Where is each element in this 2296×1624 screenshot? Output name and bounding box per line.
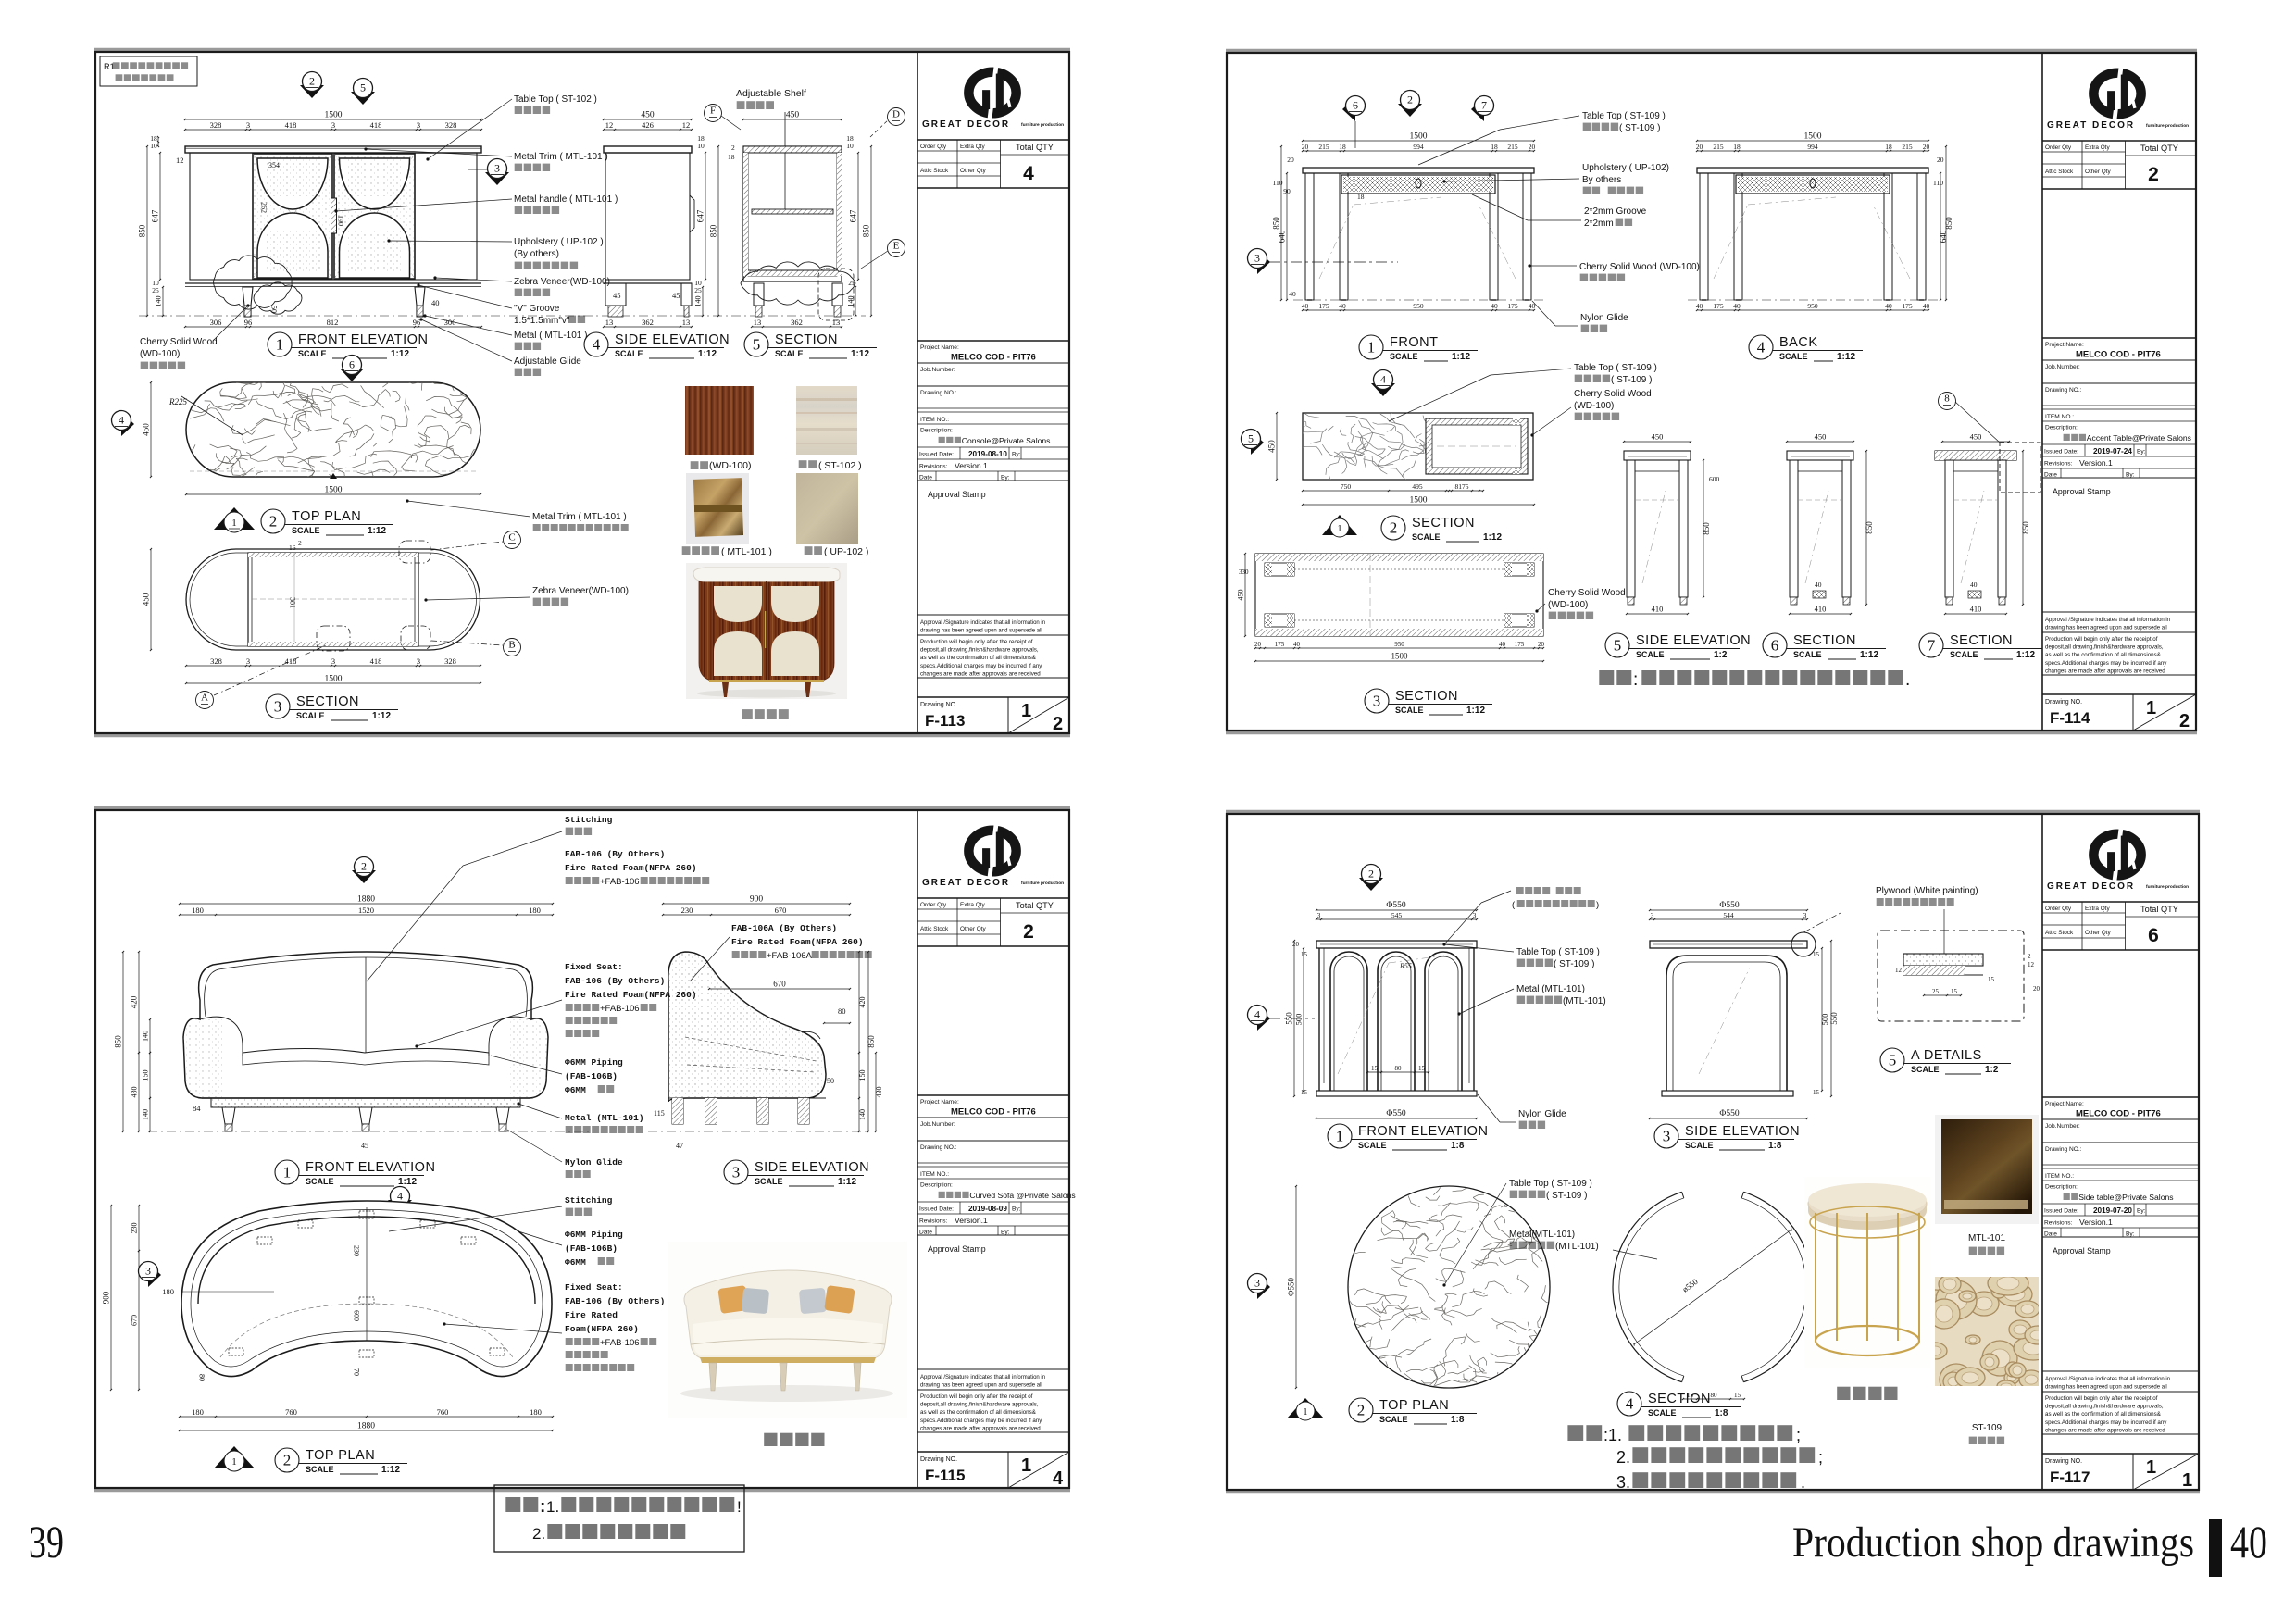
svg-text:Version.1: Version.1	[955, 461, 988, 470]
svg-text:18: 18	[1357, 193, 1365, 201]
svg-text::: :	[540, 1497, 545, 1517]
svg-text:20: 20	[1529, 143, 1536, 151]
svg-text:Description:: Description:	[920, 428, 953, 434]
svg-text:SCALE: SCALE	[1950, 650, 1978, 659]
svg-text:426: 426	[642, 120, 654, 130]
svg-text:( MTL-101 ): ( MTL-101 )	[721, 546, 772, 557]
svg-text:80: 80	[198, 1374, 206, 1381]
svg-text:418: 418	[370, 120, 382, 130]
svg-text:SIDE ELEVATION: SIDE ELEVATION	[1685, 1124, 1800, 1139]
svg-text:12: 12	[605, 120, 614, 130]
svg-text:2: 2	[1357, 1402, 1366, 1419]
svg-text:R55: R55	[1399, 962, 1412, 970]
svg-text:13: 13	[832, 318, 841, 327]
svg-text:1520: 1520	[358, 906, 374, 915]
svg-text:Extra Qty: Extra Qty	[2085, 144, 2110, 151]
svg-text:1: 1	[1021, 701, 1031, 721]
svg-text:Job.Number:: Job.Number:	[920, 367, 955, 373]
svg-text:SCALE: SCALE	[755, 1177, 783, 1186]
svg-text:FRONT ELEVATION: FRONT ELEVATION	[1358, 1124, 1488, 1139]
svg-text:40: 40	[1499, 641, 1506, 648]
svg-text:furniture production: furniture production	[1021, 122, 1064, 128]
svg-text:750: 750	[1341, 482, 1352, 491]
svg-text:A: A	[201, 693, 208, 704]
svg-text:410: 410	[1652, 605, 1664, 614]
svg-text:Metal ( MTL-101 ): Metal ( MTL-101 )	[514, 331, 587, 341]
svg-text:Drawing NO.:: Drawing NO.:	[2045, 1146, 2082, 1153]
svg-text:3: 3	[1254, 252, 1260, 265]
svg-text:20: 20	[1302, 143, 1309, 151]
svg-text:as well as the confirmation of: as well as the confirmation of all dimen…	[920, 1409, 1037, 1416]
svg-text:FAB-106 (By Others): FAB-106 (By Others)	[565, 849, 665, 859]
svg-text:Φ550: Φ550	[1287, 1277, 1296, 1296]
svg-text:15: 15	[1301, 951, 1308, 958]
svg-text:By:: By:	[1001, 1230, 1010, 1236]
svg-text:1:12: 1:12	[391, 349, 409, 359]
svg-text:Attic Stock: Attic Stock	[920, 168, 949, 174]
svg-text:( ST-109 ): ( ST-109 )	[1619, 123, 1660, 133]
svg-text:1: 1	[1021, 1455, 1031, 1476]
svg-text:5: 5	[1889, 1052, 1897, 1069]
svg-text:230: 230	[131, 1223, 139, 1234]
svg-text:450: 450	[1267, 440, 1277, 453]
svg-text:330: 330	[1239, 568, 1249, 576]
svg-text:4: 4	[593, 336, 601, 354]
svg-text:( ST-109 ): ( ST-109 )	[1611, 375, 1652, 385]
svg-text:850: 850	[114, 1035, 123, 1048]
svg-text:4: 4	[1380, 373, 1386, 386]
svg-text:Approval /Signature indicates: Approval /Signature indicates that all i…	[920, 1375, 1045, 1380]
svg-text:Curved Sofa @Private Salons: Curved Sofa @Private Salons	[969, 1191, 1075, 1200]
svg-text:3: 3	[331, 120, 335, 130]
svg-text:40: 40	[1293, 641, 1301, 648]
svg-text:850: 850	[709, 224, 718, 237]
svg-text:2*2mm: 2*2mm	[1584, 219, 1614, 229]
svg-text:Foam(NFPA 260): Foam(NFPA 260)	[565, 1324, 639, 1334]
svg-text:950: 950	[1394, 641, 1404, 648]
svg-text:By:: By:	[1001, 475, 1010, 481]
svg-text:Other Qty: Other Qty	[2085, 930, 2112, 936]
svg-text:+FAB-106: +FAB-106	[600, 1338, 640, 1348]
svg-text:760: 760	[285, 1407, 297, 1417]
svg-text:Console@Private Salons: Console@Private Salons	[962, 436, 1051, 445]
svg-text:Project Name:: Project Name:	[2045, 1101, 2084, 1107]
svg-text:SECTION: SECTION	[775, 332, 838, 347]
svg-text:2: 2	[1390, 519, 1398, 537]
svg-text:215: 215	[1713, 143, 1724, 151]
svg-text:994: 994	[1807, 143, 1818, 151]
svg-text:13: 13	[754, 318, 762, 327]
svg-text:Nylon Glide: Nylon Glide	[1518, 1109, 1566, 1119]
svg-text:950: 950	[1413, 302, 1424, 310]
svg-text:1:12: 1:12	[1483, 532, 1502, 543]
svg-text:Issued Date:: Issued Date:	[2044, 1208, 2078, 1215]
svg-text:ITEM NO.:: ITEM NO.:	[2045, 414, 2074, 420]
svg-text:Metal(MTL-101): Metal(MTL-101)	[1509, 1230, 1575, 1240]
svg-text:SCALE: SCALE	[306, 1177, 334, 1186]
svg-text:SCALE: SCALE	[775, 349, 804, 358]
svg-text:6: 6	[349, 358, 355, 371]
svg-text:175: 175	[1713, 302, 1724, 310]
svg-text:39: 39	[29, 1516, 64, 1568]
svg-text:( ST-109 ): ( ST-109 )	[1554, 959, 1594, 969]
svg-text:E: E	[893, 241, 900, 252]
svg-text:550: 550	[1829, 1012, 1839, 1025]
svg-text:2: 2	[731, 144, 735, 152]
svg-text:,: ,	[1602, 187, 1604, 197]
svg-text:90: 90	[1283, 187, 1291, 195]
svg-text:5: 5	[753, 336, 761, 354]
svg-text:450: 450	[1237, 590, 1245, 601]
svg-text:3: 3	[274, 698, 282, 716]
svg-text:7: 7	[1928, 637, 1936, 655]
svg-text:Drawing NO.: Drawing NO.	[920, 1456, 957, 1463]
svg-text:1500: 1500	[325, 111, 343, 120]
svg-text:By:: By:	[2126, 472, 2135, 479]
svg-text:2: 2	[1368, 868, 1374, 881]
svg-text:40: 40	[1923, 302, 1930, 310]
svg-text:Upholstery ( UP-102 ): Upholstery ( UP-102 )	[514, 237, 604, 247]
svg-text:Approval Stamp: Approval Stamp	[928, 490, 986, 499]
svg-text:drawing has been agreed upon a: drawing has been agreed upon and superse…	[920, 629, 1042, 634]
svg-text:418: 418	[370, 656, 382, 666]
svg-text:175: 175	[1275, 641, 1285, 648]
svg-text:Upholstery ( UP-102): Upholstery ( UP-102)	[1582, 163, 1669, 173]
svg-text:furniture production: furniture production	[2146, 884, 2189, 890]
svg-text:Φ6MM: Φ6MM	[565, 1085, 586, 1095]
svg-text:(By others): (By others)	[514, 249, 559, 259]
svg-text:50: 50	[827, 1077, 834, 1085]
svg-text:15: 15	[1988, 976, 1995, 983]
svg-text:40: 40	[1491, 302, 1498, 310]
svg-text:18: 18	[1491, 143, 1498, 151]
svg-text:1.5*1.5mm"v": 1.5*1.5mm"v"	[514, 316, 570, 326]
svg-text:SCALE: SCALE	[1395, 706, 1424, 715]
svg-text:70: 70	[353, 1368, 361, 1376]
svg-text:SCALE: SCALE	[1911, 1065, 1940, 1074]
svg-text:1: 1	[231, 1456, 237, 1468]
svg-text:450: 450	[142, 423, 151, 436]
svg-text:as well as the confirmation of: as well as the confirmation of all dimen…	[2045, 652, 2162, 658]
svg-text:Table Top ( ST-102 ): Table Top ( ST-102 )	[514, 94, 597, 105]
svg-text:deposit,all drawing,finish&har: deposit,all drawing,finish&hardware appr…	[2045, 1404, 2164, 1410]
svg-text:Table Top ( ST-109 ): Table Top ( ST-109 )	[1516, 947, 1600, 957]
svg-text:Approval Stamp: Approval Stamp	[2053, 1246, 2111, 1255]
svg-text:4: 4	[1626, 1395, 1634, 1413]
svg-text:80: 80	[838, 1006, 846, 1016]
svg-text:850: 850	[867, 1035, 876, 1048]
svg-text:25: 25	[152, 286, 159, 294]
svg-text:(MTL-101): (MTL-101)	[1555, 1242, 1599, 1252]
svg-text:410: 410	[1970, 605, 1982, 614]
svg-text:Approval Stamp: Approval Stamp	[2053, 487, 2111, 496]
svg-text:2: 2	[2179, 711, 2190, 731]
svg-text:20: 20	[1538, 641, 1545, 648]
svg-text:6: 6	[2148, 925, 2159, 946]
svg-text:450: 450	[1652, 432, 1664, 442]
svg-text:1:8: 1:8	[1451, 1141, 1465, 1151]
svg-text:13: 13	[605, 318, 614, 327]
svg-text:15: 15	[1813, 1089, 1820, 1096]
svg-text:as well as the confirmation of: as well as the confirmation of all dimen…	[920, 655, 1037, 661]
svg-text:40: 40	[1970, 581, 1978, 589]
svg-text:25: 25	[848, 279, 855, 287]
svg-text:2: 2	[1053, 714, 1063, 734]
svg-text:( UP-102 ): ( UP-102 )	[824, 546, 868, 557]
svg-text:420: 420	[858, 997, 867, 1008]
svg-text:140: 140	[142, 1109, 150, 1120]
svg-text:GREAT DECOR: GREAT DECOR	[2047, 120, 2135, 131]
svg-text:15: 15	[1418, 1065, 1426, 1072]
svg-text:Production will begin only aft: Production will begin only after the rec…	[920, 1393, 1033, 1400]
svg-text:3: 3	[1254, 1277, 1260, 1290]
svg-text::: :	[1633, 670, 1638, 690]
svg-text:changes are made after approva: changes are made after approvals are rec…	[920, 1425, 1041, 1431]
svg-text:By:: By:	[2137, 449, 2146, 456]
svg-text:SCALE: SCALE	[298, 349, 327, 358]
svg-text:Extra Qty: Extra Qty	[960, 144, 985, 150]
svg-text:Version.1: Version.1	[2079, 458, 2113, 468]
svg-text:1:8: 1:8	[1768, 1141, 1782, 1151]
svg-text:3: 3	[1663, 1128, 1671, 1145]
svg-text:Metal Trim ( MTL-101 ): Metal Trim ( MTL-101 )	[514, 152, 608, 162]
svg-text:Fixed Seat:: Fixed Seat:	[565, 962, 623, 972]
svg-text:1:12: 1:12	[398, 1177, 417, 1187]
svg-text:GREAT DECOR: GREAT DECOR	[922, 878, 1010, 888]
svg-text:FRONT ELEVATION: FRONT ELEVATION	[298, 332, 428, 347]
svg-text:180: 180	[529, 906, 541, 915]
svg-text:850: 850	[138, 224, 147, 237]
svg-text:4: 4	[1053, 1468, 1064, 1489]
svg-text:4: 4	[397, 1190, 403, 1203]
svg-text:1:12: 1:12	[2016, 650, 2035, 660]
svg-text:Φ550: Φ550	[1719, 1109, 1739, 1118]
svg-text:354: 354	[268, 161, 280, 169]
svg-text:2: 2	[269, 513, 278, 531]
svg-text:640: 640	[1278, 230, 1287, 243]
svg-text:180: 180	[192, 1407, 204, 1417]
svg-text:Order Qty: Order Qty	[2045, 906, 2072, 912]
svg-text:850: 850	[1272, 217, 1281, 230]
svg-text:430: 430	[875, 1087, 883, 1098]
svg-text:+FAB-106: +FAB-106	[600, 877, 640, 887]
svg-text:3: 3	[1651, 911, 1654, 919]
svg-text:13: 13	[682, 318, 691, 327]
svg-text:175: 175	[1515, 641, 1525, 648]
svg-text:10: 10	[846, 142, 854, 150]
svg-text:5: 5	[1614, 637, 1622, 655]
svg-text:16: 16	[289, 543, 296, 552]
svg-text:10: 10	[697, 142, 705, 150]
svg-text:Total QTY: Total QTY	[2140, 905, 2178, 914]
svg-text:190: 190	[337, 215, 345, 226]
svg-text:1: 1	[2146, 1457, 2156, 1478]
svg-text:1500: 1500	[1410, 496, 1428, 506]
svg-text:1: 1	[2146, 698, 2156, 718]
svg-text:3: 3	[246, 120, 250, 130]
svg-text:1:12: 1:12	[381, 1465, 400, 1475]
svg-text:Revisions:: Revisions:	[919, 1218, 948, 1225]
svg-text:F-114: F-114	[2050, 709, 2090, 727]
svg-text:1:8: 1:8	[1451, 1415, 1465, 1425]
svg-text:40: 40	[1339, 302, 1346, 310]
svg-text:(FAB-106B): (FAB-106B)	[565, 1071, 618, 1081]
svg-text:2.: 2.	[532, 1525, 545, 1543]
svg-text:362: 362	[791, 318, 803, 327]
svg-text:+FAB-106: +FAB-106	[600, 1004, 640, 1014]
svg-text:Order Qty: Order Qty	[2045, 144, 2072, 151]
svg-text:B: B	[508, 640, 515, 651]
svg-text:850: 850	[1702, 522, 1711, 535]
svg-text:1:12: 1:12	[698, 349, 717, 359]
svg-text:2*2mm Groove: 2*2mm Groove	[1584, 206, 1647, 217]
svg-text:F-115: F-115	[925, 1467, 965, 1484]
svg-text:Other Qty: Other Qty	[2085, 169, 2112, 175]
svg-text:850: 850	[862, 224, 871, 237]
svg-text:By:: By:	[2126, 1231, 2135, 1238]
svg-text:1: 1	[1338, 524, 1342, 534]
svg-text:Approval /Signature indicates: Approval /Signature indicates that all i…	[2045, 618, 2170, 623]
svg-text:6: 6	[1353, 99, 1358, 112]
svg-text:1880: 1880	[357, 895, 375, 905]
svg-text:40: 40	[1696, 302, 1703, 310]
svg-text:(MTL-101): (MTL-101)	[1563, 996, 1606, 1006]
svg-text:1500: 1500	[1804, 132, 1822, 142]
svg-text:812: 812	[327, 318, 339, 327]
svg-text:SCALE: SCALE	[306, 1465, 334, 1474]
svg-text:drawing has been agreed upon a: drawing has been agreed upon and superse…	[2045, 1385, 2167, 1391]
svg-text:MELCO COD - PIT76: MELCO COD - PIT76	[2076, 350, 2161, 360]
svg-text:Side table@Private Salons: Side table@Private Salons	[2078, 1193, 2173, 1202]
svg-text:Nylon Glide: Nylon Glide	[1580, 313, 1628, 323]
svg-text:3: 3	[1317, 911, 1321, 919]
svg-text:115: 115	[654, 1109, 665, 1118]
svg-text:3: 3	[145, 1265, 151, 1278]
svg-text:1500: 1500	[1391, 652, 1409, 661]
svg-text:1: 1	[1367, 339, 1376, 356]
svg-text:3.: 3.	[1616, 1473, 1630, 1492]
svg-text:Total QTY: Total QTY	[1016, 901, 1054, 910]
svg-text:TOP PLAN: TOP PLAN	[306, 1448, 375, 1463]
svg-text:1:12: 1:12	[1452, 352, 1470, 362]
svg-text:1:2: 1:2	[1714, 650, 1728, 660]
svg-text:FAB-106A (By Others): FAB-106A (By Others)	[731, 923, 837, 933]
svg-text:SCALE: SCALE	[1685, 1141, 1714, 1150]
svg-text:Cherry Solid Wood (WD-100): Cherry Solid Wood (WD-100)	[1579, 262, 1700, 272]
svg-text:950: 950	[1807, 302, 1818, 310]
svg-text:18: 18	[1885, 143, 1892, 151]
svg-text:Job.Number:: Job.Number:	[2045, 1123, 2080, 1130]
svg-text:Fire Rated Foam(NFPA 260): Fire Rated Foam(NFPA 260)	[731, 937, 864, 947]
svg-text:Accent Table@Private Salons: Accent Table@Private Salons	[2087, 433, 2191, 443]
svg-text:.: .	[1905, 670, 1910, 690]
svg-text:specs.Additional charges may b: specs.Additional charges may be incurred…	[2045, 1419, 2167, 1426]
svg-text:4: 4	[119, 414, 124, 427]
svg-text:900: 900	[750, 895, 764, 905]
svg-text:SCALE: SCALE	[1390, 352, 1418, 361]
svg-text:changes are made after approva: changes are made after approvals are rec…	[2045, 668, 2165, 674]
svg-text:Total QTY: Total QTY	[2140, 144, 2178, 153]
svg-text:SECTION: SECTION	[1950, 633, 2013, 648]
svg-text:18: 18	[728, 153, 735, 161]
svg-text:1:12: 1:12	[1837, 352, 1855, 362]
svg-text:Attic Stock: Attic Stock	[920, 926, 949, 932]
svg-text:deposit,all drawing,finish&har: deposit,all drawing,finish&hardware appr…	[2045, 644, 2164, 651]
svg-text:20: 20	[1923, 143, 1930, 151]
svg-text:Table Top ( ST-109 ): Table Top ( ST-109 )	[1582, 111, 1666, 121]
svg-text:ITEM NO.:: ITEM NO.:	[920, 1171, 949, 1178]
svg-text:1:12: 1:12	[372, 711, 391, 721]
svg-text:C: C	[508, 532, 515, 543]
svg-text:45: 45	[613, 291, 621, 300]
svg-text:Fire Rated Foam(NFPA 260): Fire Rated Foam(NFPA 260)	[565, 863, 697, 873]
svg-text:FAB-106 (By Others): FAB-106 (By Others)	[565, 1296, 665, 1306]
svg-text:1880: 1880	[357, 1422, 375, 1431]
svg-text:ITEM NO.:: ITEM NO.:	[920, 417, 949, 423]
svg-text:2: 2	[309, 75, 315, 88]
svg-text:Order Qty: Order Qty	[920, 902, 947, 908]
svg-text:20: 20	[1254, 641, 1262, 648]
svg-text:F: F	[710, 106, 716, 117]
svg-text:;: ;	[1796, 1426, 1801, 1444]
svg-text:Zebra Veneer(WD-100): Zebra Veneer(WD-100)	[514, 277, 610, 287]
svg-text:Issued Date:: Issued Date:	[2044, 449, 2078, 456]
svg-text:Cherry Solid Wood: Cherry Solid Wood	[140, 337, 218, 347]
svg-text:.: .	[1801, 1473, 1805, 1492]
svg-text:1500: 1500	[1410, 132, 1428, 142]
svg-text:80: 80	[1395, 1065, 1403, 1072]
svg-text:40: 40	[1302, 302, 1309, 310]
svg-text:600: 600	[1709, 475, 1720, 483]
svg-text:Extra Qty: Extra Qty	[960, 902, 985, 908]
svg-text:900: 900	[102, 1291, 111, 1304]
svg-text:45: 45	[361, 1142, 368, 1150]
svg-text:140: 140	[847, 296, 855, 307]
svg-text:furniture production: furniture production	[2146, 123, 2189, 129]
svg-text:430: 430	[131, 1087, 139, 1098]
svg-text:Metal Trim ( MTL-101 ): Metal Trim ( MTL-101 )	[532, 512, 627, 522]
svg-text:262: 262	[260, 202, 268, 213]
svg-text:25: 25	[694, 286, 702, 294]
svg-text:MTL-101: MTL-101	[1968, 1233, 2005, 1243]
svg-text:418: 418	[285, 656, 297, 666]
svg-text:TOP PLAN: TOP PLAN	[292, 509, 361, 524]
svg-text:Table Top ( ST-109 ): Table Top ( ST-109 )	[1574, 363, 1657, 373]
svg-text:381: 381	[289, 597, 297, 608]
svg-text:140: 140	[155, 296, 163, 307]
svg-text:Drawing NO.:: Drawing NO.:	[920, 390, 957, 396]
svg-text:Date: Date	[2044, 1231, 2057, 1238]
svg-text:Drawing NO.: Drawing NO.	[2045, 1458, 2082, 1465]
svg-text:328: 328	[445, 120, 457, 130]
svg-text:Date: Date	[919, 475, 932, 481]
svg-text:850: 850	[1944, 217, 1953, 230]
svg-text:1:12: 1:12	[1860, 650, 1878, 660]
svg-text:495: 495	[1412, 482, 1423, 491]
svg-text:A DETAILS: A DETAILS	[1911, 1048, 1982, 1063]
svg-text:175: 175	[1902, 302, 1913, 310]
svg-text:647: 647	[849, 209, 858, 222]
svg-text:Production will begin only aft: Production will begin only after the rec…	[2045, 636, 2158, 643]
svg-text:2019-08-10: 2019-08-10	[968, 450, 1007, 458]
svg-text:Φ6MM Piping: Φ6MM Piping	[565, 1057, 623, 1068]
svg-text:230: 230	[681, 906, 693, 915]
svg-text:F-113: F-113	[925, 712, 965, 730]
svg-text:15: 15	[1951, 988, 1958, 995]
svg-text:45: 45	[672, 291, 680, 300]
svg-text:(WD-100): (WD-100)	[1548, 600, 1588, 610]
svg-text:Φ550: Φ550	[1386, 1109, 1405, 1118]
